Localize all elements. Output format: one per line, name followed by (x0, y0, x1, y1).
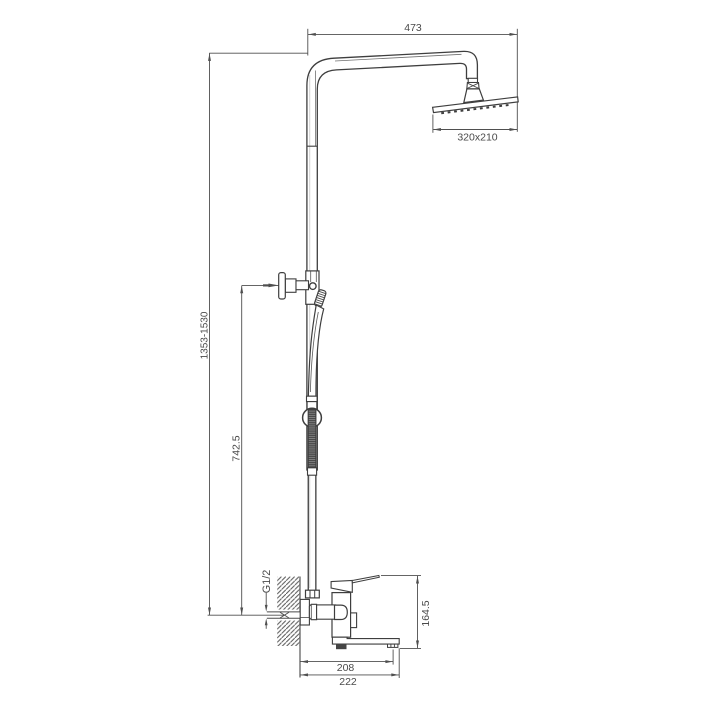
svg-text:742.5: 742.5 (230, 435, 242, 461)
svg-text:222: 222 (339, 676, 357, 688)
svg-text:1353-1530: 1353-1530 (199, 311, 210, 359)
svg-text:473: 473 (404, 22, 422, 34)
svg-text:320x210: 320x210 (457, 131, 497, 143)
svg-text:G1/2: G1/2 (261, 570, 273, 593)
svg-text:208: 208 (337, 662, 355, 674)
svg-text:164.5: 164.5 (420, 600, 432, 626)
